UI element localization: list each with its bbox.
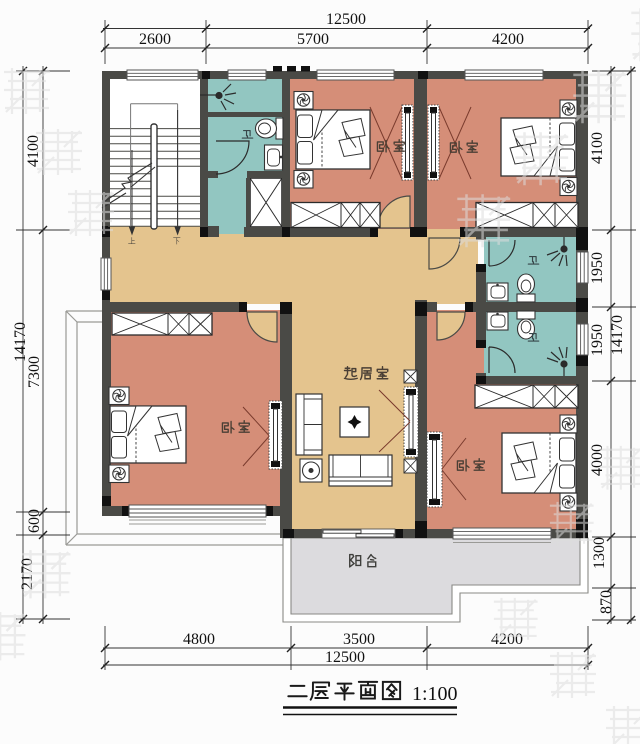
- svg-text:1300: 1300: [591, 537, 608, 569]
- svg-text:1950: 1950: [589, 252, 606, 284]
- svg-text:5700: 5700: [297, 31, 329, 48]
- svg-text:1950: 1950: [589, 324, 606, 356]
- svg-text:12500: 12500: [325, 649, 365, 666]
- svg-text:4200: 4200: [492, 31, 524, 48]
- svg-text:1:100: 1:100: [412, 683, 458, 705]
- svg-text:870: 870: [598, 590, 615, 614]
- svg-text:2600: 2600: [139, 31, 171, 48]
- svg-text:4800: 4800: [183, 631, 215, 648]
- svg-text:14170: 14170: [12, 322, 29, 362]
- svg-text:600: 600: [26, 509, 43, 533]
- svg-text:4100: 4100: [589, 132, 606, 164]
- svg-text:12500: 12500: [326, 11, 366, 28]
- svg-text:14170: 14170: [609, 315, 626, 355]
- svg-text:3500: 3500: [343, 631, 375, 648]
